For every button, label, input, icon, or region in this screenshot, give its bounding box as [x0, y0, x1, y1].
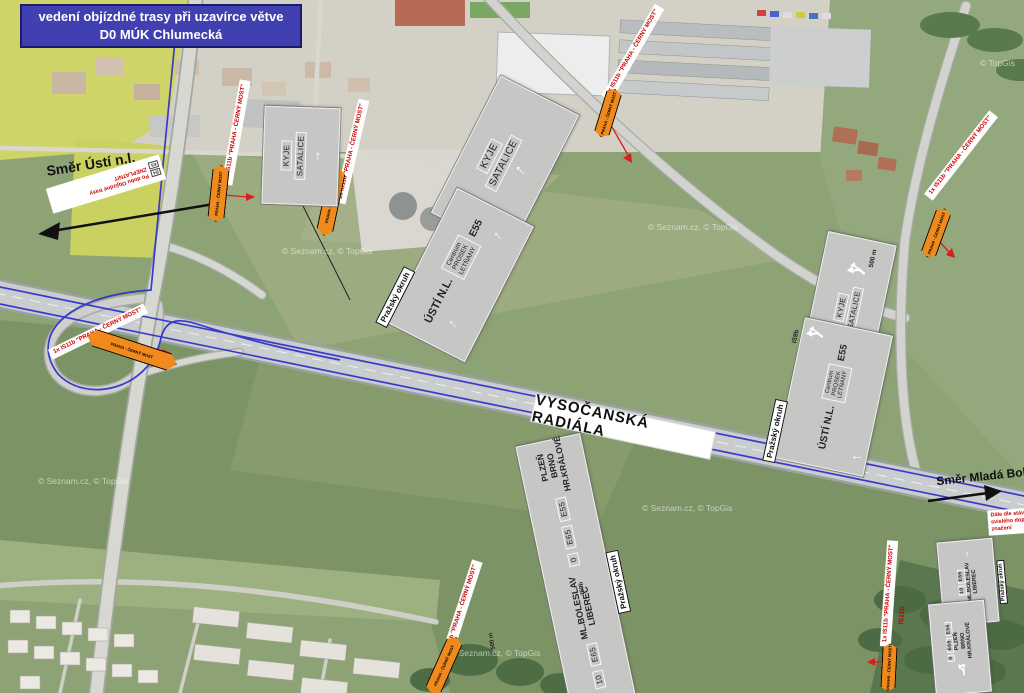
route-number: E65	[561, 525, 577, 550]
arrow-branch-icon	[843, 258, 868, 282]
route-number: E55	[555, 497, 571, 522]
sign-plzen-small: 0 E65 E55 PLZEŇ BRNO HR.KRÁLOVÉ	[928, 600, 992, 693]
plan-title-line2: D0 MÚK Chlumecká	[22, 26, 300, 44]
arrow-straight-icon: →	[850, 453, 863, 466]
arrow-straight-icon: →	[442, 317, 460, 335]
arrow-branch-icon	[956, 662, 967, 676]
arrow-straight-icon: →	[961, 551, 970, 560]
road-badge: 0	[566, 552, 579, 567]
road-badge: 10	[591, 670, 605, 690]
is11b-code-label: IS11b	[898, 606, 906, 625]
route-number: E55	[836, 344, 850, 363]
sign-kyje-satalice-small: KYJE SATALICE →	[261, 106, 340, 207]
sign-dest: HR.KRÁLOVÉ	[965, 622, 974, 659]
plan-title: vedení objízdné trasy při uzavírce větve…	[20, 4, 302, 48]
detour-plan-map: © Seznam.cz, © TopGis © Seznam.cz, © Top…	[0, 0, 1024, 693]
watermark: © Seznam.cz, © TopGis	[648, 222, 738, 232]
sign-dest: ÚSTÍ N.L.	[817, 405, 837, 451]
watermark: © TopGis	[980, 58, 1015, 68]
note-existing-signage: Dále dle stávajícího svislého dopravního…	[987, 505, 1024, 535]
sign-dest: SATALICE	[294, 131, 307, 180]
route-number: E65	[586, 642, 602, 667]
is11b-marker-bar: PRAHA - ČERNÝ MOST	[880, 643, 897, 692]
sign-dest: KYJE	[280, 140, 292, 170]
arrow-straight-icon: →	[508, 160, 531, 183]
arrow-branch-icon	[803, 323, 826, 346]
arrow-straight-icon: →	[308, 150, 321, 163]
sign-dest: LIBEREC	[971, 569, 979, 594]
arrow-straight-icon: →	[487, 228, 505, 246]
badge-b4: B4	[150, 168, 161, 178]
watermark: © Seznam.cz, © TopGis	[282, 246, 372, 256]
road-badge: 0	[947, 654, 955, 662]
sign-dest-group: Centrum PROSEK LETŇANY	[821, 364, 853, 404]
watermark: © Seznam.cz, © TopGis	[450, 648, 540, 658]
route-number: E55	[467, 218, 485, 239]
watermark: © Seznam.cz, © TopGis	[642, 503, 732, 513]
sign-badges: B4 E5	[148, 160, 162, 177]
plan-title-line1: vedení objízdné trasy při uzavírce větve	[22, 8, 300, 26]
watermark: © Seznam.cz, © TopGis	[38, 476, 128, 486]
